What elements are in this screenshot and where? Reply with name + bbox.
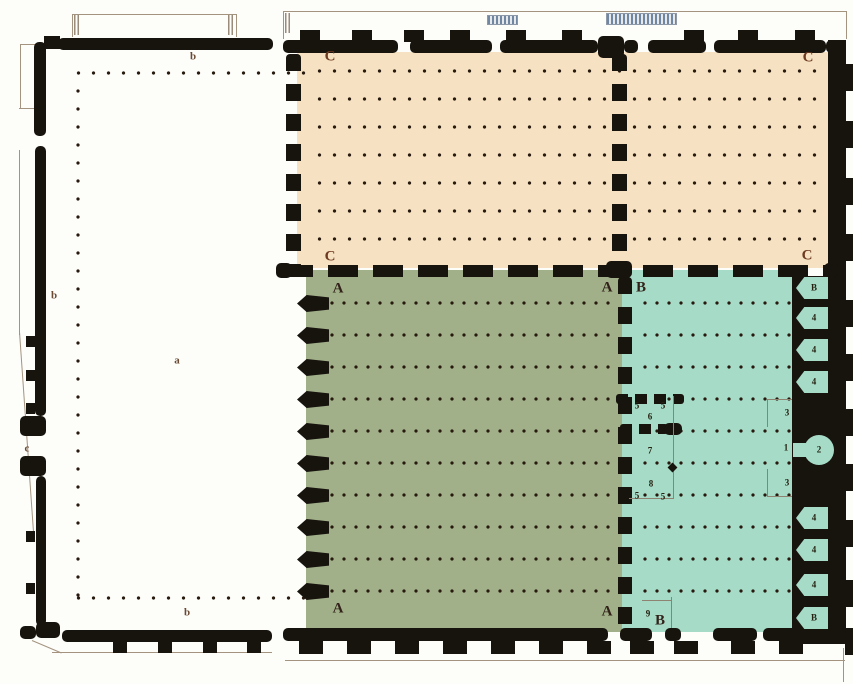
chamber-label: 4 xyxy=(812,346,817,355)
courtyard-arcade-south xyxy=(71,591,307,605)
chamber-label: B xyxy=(811,614,817,623)
west-wall-buttress xyxy=(26,531,35,542)
courtyard-hatch-east xyxy=(228,15,235,35)
plan-label-A: A xyxy=(602,605,613,620)
north-wall-buttress xyxy=(562,30,582,42)
east-wall-buttress xyxy=(845,178,853,205)
south-wall-buttress xyxy=(731,641,755,654)
east-wall-buttress xyxy=(845,234,853,261)
chamber-label: 4 xyxy=(812,314,817,323)
nave-axis-line xyxy=(671,597,672,629)
phase-a-compound-pier xyxy=(297,455,329,472)
plan-label-5: 5 xyxy=(635,492,640,501)
maqsura-outline-east xyxy=(673,396,674,499)
south-wall-buttress xyxy=(443,641,467,654)
west-wall-gate-pier xyxy=(20,456,46,476)
phase-a-compound-pier xyxy=(297,359,329,376)
chamber-label: 4 xyxy=(812,514,817,523)
east-wall-buttress xyxy=(845,121,853,148)
chamber-label: B xyxy=(811,284,817,293)
phase-a-compound-pier xyxy=(297,391,329,408)
hall-north-wall-segment xyxy=(624,40,638,53)
phase-a-compound-pier xyxy=(297,551,329,568)
courtyard-south-buttress xyxy=(113,642,127,653)
courtyard-outline-top xyxy=(72,14,237,15)
plan-label-C: C xyxy=(325,250,336,265)
courtyard-south-wall xyxy=(62,630,272,642)
gate-hatch-bar-east xyxy=(606,13,677,25)
plan-label-A: A xyxy=(602,281,613,296)
west-wall-buttress xyxy=(26,583,35,594)
plan-label-C: C xyxy=(325,50,336,65)
east-wall-buttress xyxy=(845,409,853,436)
plan-label-c: c xyxy=(25,444,30,455)
north-wall-buttress xyxy=(738,30,758,42)
maqsura-dashed-wall-inner xyxy=(620,424,668,434)
bay-bracket-top-h xyxy=(767,399,795,400)
column-grid-phase-a xyxy=(326,287,614,607)
plan-label-a: a xyxy=(174,356,180,367)
divider-junction-east xyxy=(824,263,838,278)
column-grid-phase-b xyxy=(639,287,791,607)
hall-south-wall-segment xyxy=(283,628,608,641)
east-wall-buttress xyxy=(845,628,853,655)
north-wall-buttress xyxy=(404,30,424,42)
plan-label-7: 7 xyxy=(648,447,653,456)
north-wall-buttress xyxy=(506,30,526,42)
south-wall-buttress xyxy=(630,641,654,654)
south-wall-buttress xyxy=(299,641,323,654)
courtyard-hatch-west xyxy=(74,15,81,35)
east-wall-buttress xyxy=(845,64,853,91)
south-wall-buttress xyxy=(539,641,563,654)
south-wall-buttress xyxy=(587,641,611,654)
plan-label-B: B xyxy=(636,281,646,296)
phase-a-compound-pier xyxy=(297,487,329,504)
east-wall-buttress xyxy=(845,354,853,381)
southwest-corner-foot xyxy=(20,626,36,639)
phase-a-compound-pier xyxy=(297,327,329,344)
plan-label-C: C xyxy=(803,51,814,66)
south-wall-buttress xyxy=(347,641,371,654)
hall-south-wall-segment xyxy=(665,628,681,641)
plan-label-A: A xyxy=(333,282,344,297)
dashed-wall-center-north xyxy=(612,54,627,268)
west-gallery-outline-v2 xyxy=(19,150,20,335)
west-gallery-outline-v1 xyxy=(20,45,21,109)
east-wall-buttress xyxy=(845,580,853,607)
mihrab-opening xyxy=(793,443,806,457)
east-wall-buttress xyxy=(845,300,853,327)
plan-label-b: b xyxy=(190,52,196,63)
dashed-wall-phase-divider xyxy=(283,265,832,277)
gate-hatch-bar-west xyxy=(487,15,518,25)
hall-south-wall-segment xyxy=(763,628,846,641)
courtyard-arcade-north xyxy=(71,66,307,80)
plan-label-A: A xyxy=(333,602,344,617)
north-outline-top xyxy=(283,11,847,12)
north-outline-right xyxy=(846,11,847,39)
courtyard-southwest-corner xyxy=(36,622,60,638)
south-wall-buttress xyxy=(779,641,803,654)
courtyard-arcade-west xyxy=(71,82,85,604)
divider-junction-west xyxy=(276,263,292,278)
phase-a-compound-pier xyxy=(297,519,329,536)
plan-label-1: 1 xyxy=(784,444,789,453)
baseline-hall xyxy=(285,660,845,661)
plan-label-5: 5 xyxy=(661,402,666,411)
north-wall-buttress xyxy=(300,30,320,42)
west-wall-gate-pier xyxy=(20,416,46,436)
south-wall-buttress xyxy=(491,641,515,654)
courtyard-west-wall-segment xyxy=(35,146,46,416)
courtyard-south-buttress xyxy=(203,642,217,653)
bay-bracket-bottom-h xyxy=(767,496,795,497)
north-wall-buttress xyxy=(795,30,815,42)
bay-bracket-bottom-v xyxy=(767,469,768,497)
chamber-label: 4 xyxy=(812,546,817,555)
south-wall-buttress xyxy=(395,641,419,654)
courtyard-south-buttress xyxy=(158,642,172,653)
east-wall-buttress xyxy=(845,520,853,547)
hall-south-wall-segment xyxy=(620,628,652,641)
hall-east-wall xyxy=(828,40,846,278)
west-gallery-outline-diag xyxy=(19,332,35,542)
divider-junction-center xyxy=(606,261,632,278)
west-wall-buttress xyxy=(26,403,35,414)
chamber-label: 4 xyxy=(812,378,817,387)
baseline-court-diag xyxy=(32,640,62,653)
east-wall-buttress xyxy=(845,464,853,491)
chamber-label: 4 xyxy=(812,581,817,590)
courtyard-northwest-corner xyxy=(44,36,60,49)
plan-label-b: b xyxy=(184,608,190,619)
north-wall-buttress xyxy=(450,30,470,42)
dashed-wall-west-facade xyxy=(286,54,301,268)
plan-label-b: b xyxy=(51,291,57,302)
plan-label-3: 3 xyxy=(785,409,790,418)
north-outline-hatch xyxy=(285,13,292,33)
south-wall-buttress xyxy=(674,641,698,654)
dashed-wall-a-b-boundary xyxy=(618,277,632,630)
courtyard-north-wall xyxy=(58,38,273,50)
west-wall-buttress xyxy=(26,370,35,381)
plan-label-8: 8 xyxy=(649,480,654,489)
north-wall-buttress xyxy=(352,30,372,42)
bay-bracket-top-v xyxy=(767,399,768,427)
north-wall-pier xyxy=(598,36,624,58)
plan-label-C: C xyxy=(802,249,813,264)
plan-label-5: 5 xyxy=(635,402,640,411)
courtyard-west-wall-segment xyxy=(36,476,46,626)
phase-a-compound-pier xyxy=(297,423,329,440)
phase-a-compound-pier xyxy=(297,295,329,312)
west-wall-buttress xyxy=(26,336,35,347)
courtyard-south-buttress xyxy=(247,642,261,653)
plan-label-6: 6 xyxy=(648,413,653,422)
plan-label-3: 3 xyxy=(785,479,790,488)
courtyard-outline-right xyxy=(236,14,237,37)
courtyard-outline-left xyxy=(72,14,73,37)
mosque-floor-plan: B4442444BbbcabCCCCAAAABB55678559133 xyxy=(0,0,853,684)
nave-axis-tick xyxy=(642,600,672,601)
plan-label-B: B xyxy=(655,614,665,629)
column-grid-phase-c xyxy=(312,57,824,253)
plan-label-9: 9 xyxy=(646,610,651,619)
baseline-hall-corner xyxy=(843,648,844,682)
chamber-label: 2 xyxy=(817,446,822,455)
north-wall-buttress xyxy=(684,30,704,42)
north-outline-left xyxy=(283,11,284,39)
hall-south-wall-segment xyxy=(713,628,757,641)
courtyard-west-wall-segment xyxy=(34,42,46,136)
plan-label-5: 5 xyxy=(661,493,666,502)
